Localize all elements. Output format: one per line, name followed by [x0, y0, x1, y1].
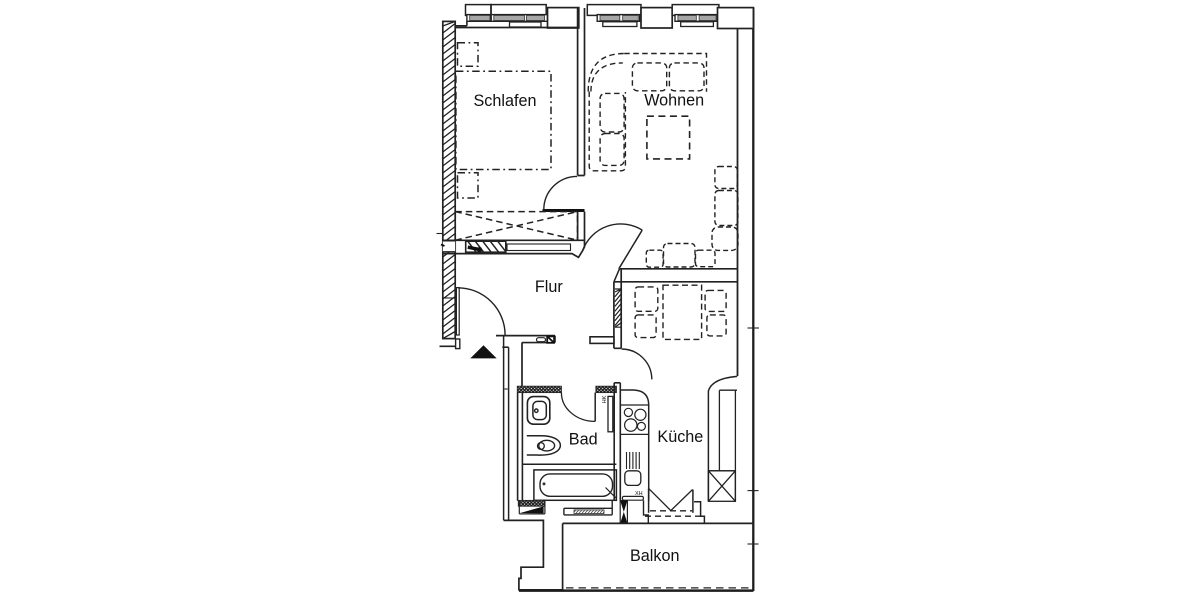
svg-text:Flur: Flur [535, 278, 563, 296]
svg-text:Schlafen: Schlafen [474, 92, 537, 110]
svg-text:XH: XH [635, 491, 643, 497]
svg-text:Bad: Bad [569, 431, 598, 449]
svg-text:Balkon: Balkon [630, 547, 680, 565]
svg-text:Küche: Küche [657, 428, 703, 446]
svg-text:HK: HK [602, 395, 608, 403]
svg-text:Wohnen: Wohnen [644, 92, 704, 110]
